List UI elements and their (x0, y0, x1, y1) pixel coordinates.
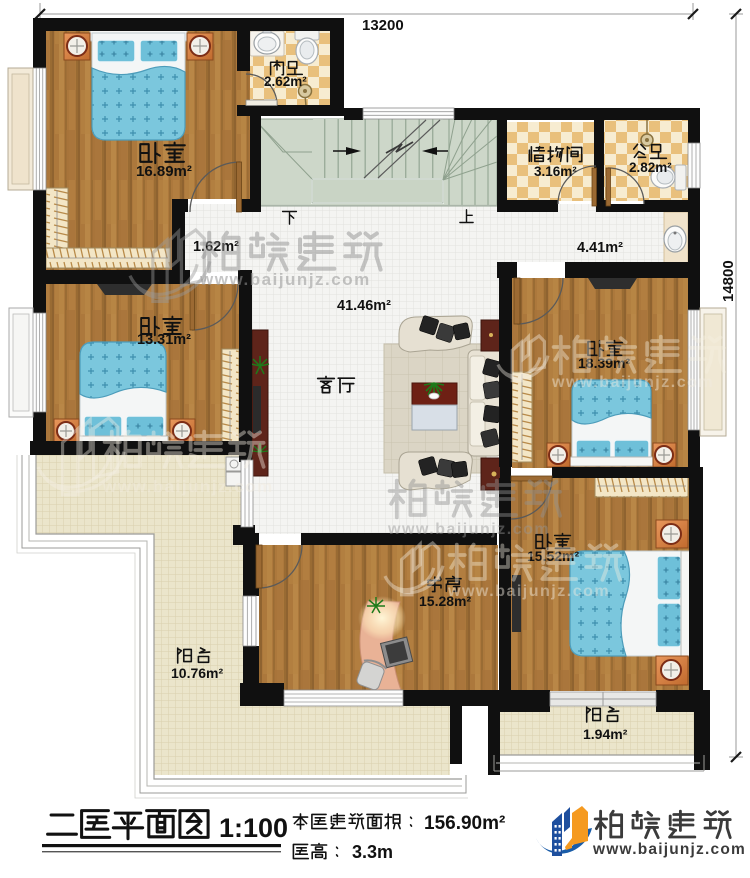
svg-text:4.41m²: 4.41m² (577, 240, 623, 256)
svg-text:14800: 14800 (720, 260, 737, 302)
svg-text:www.baijunjz.com: www.baijunjz.com (592, 841, 746, 858)
svg-text:www.baijunjz.com: www.baijunjz.com (447, 583, 610, 600)
svg-text:156.90m²: 156.90m² (424, 813, 505, 834)
svg-text:3.16m²: 3.16m² (534, 164, 577, 179)
svg-text:1.94m²: 1.94m² (583, 726, 628, 742)
svg-text:www.baijunjz.com: www.baijunjz.com (102, 477, 274, 496)
svg-text:2.62m²: 2.62m² (264, 74, 307, 89)
svg-text:13200: 13200 (362, 17, 404, 34)
svg-text:www.baijunjz.com: www.baijunjz.com (199, 270, 371, 289)
svg-text:3.3m: 3.3m (352, 842, 393, 862)
svg-text:41.46m²: 41.46m² (337, 298, 391, 314)
svg-text:2.82m²: 2.82m² (629, 160, 672, 175)
svg-text:www.baijunjz.com: www.baijunjz.com (551, 374, 714, 391)
svg-text:www.baijunjz.com: www.baijunjz.com (387, 521, 550, 538)
svg-text:1:100: 1:100 (219, 813, 288, 843)
svg-text:10.76m²: 10.76m² (171, 665, 223, 681)
svg-text:16.89m²: 16.89m² (136, 163, 192, 180)
svg-text:13.31m²: 13.31m² (137, 332, 191, 348)
